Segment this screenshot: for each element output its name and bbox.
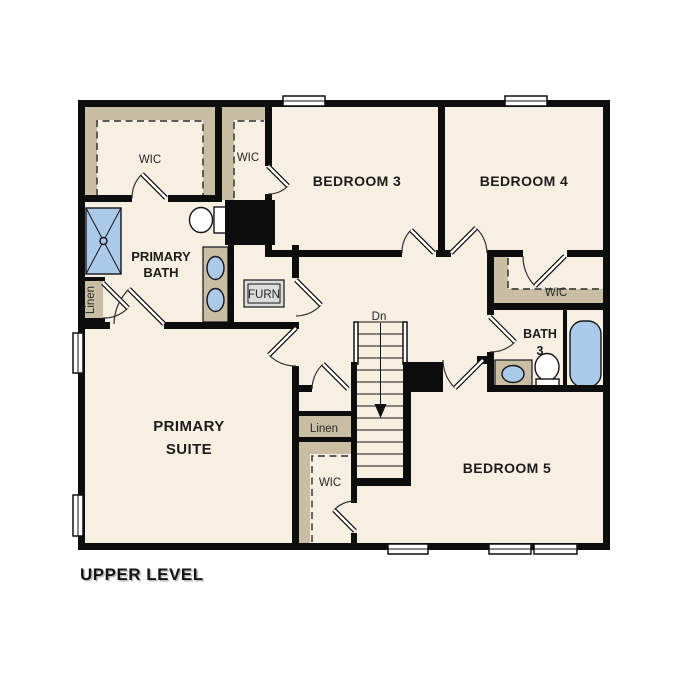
label-bath3-1: BATH	[523, 327, 557, 341]
vanity-sink	[502, 366, 524, 383]
bathtub	[570, 321, 601, 387]
wall-primary-wic-bottom	[85, 195, 132, 202]
plan-title: UPPER LEVEL	[80, 565, 204, 584]
label-primary-bath-2: BATH	[143, 265, 178, 280]
wall-bedroom4-bottom	[567, 250, 603, 257]
window-bedroom5-left	[388, 544, 428, 554]
floor-plan-canvas: WIC WIC BEDROOM 3 BEDROOM 4 PRIMARY BATH…	[0, 0, 687, 687]
floor-plan-page: WIC WIC BEDROOM 3 BEDROOM 4 PRIMARY BATH…	[0, 0, 687, 687]
wall-vanity-furnace	[228, 245, 234, 322]
label-bedroom4-wic: WIC	[545, 287, 567, 299]
vanity-sink	[207, 257, 224, 280]
wall-wic-divider	[215, 107, 222, 202]
toilet-bowl	[190, 208, 213, 233]
stair-rail-right	[403, 322, 407, 364]
window-bedroom5-right	[534, 544, 577, 554]
wall-linen1-top	[85, 277, 105, 281]
wall-wic5-stub	[351, 533, 357, 543]
label-bedroom3: BEDROOM 3	[313, 173, 401, 189]
stair-rail-left	[354, 322, 358, 364]
bath3-toilet	[535, 354, 559, 389]
label-bedroom5-wic: WIC	[319, 477, 341, 489]
wall-linen-bottom	[299, 437, 352, 442]
wall-linen-top	[299, 411, 352, 416]
label-furnace: FURN	[248, 289, 280, 301]
wall-wic4-left	[487, 250, 494, 310]
wall-furnace-right	[292, 245, 299, 278]
wall-bedroom3-left-upper	[265, 107, 272, 166]
exterior-wall-right	[603, 100, 610, 550]
label-bath-linen: Linen	[85, 286, 97, 314]
vanity-sink	[207, 289, 224, 312]
label-primary-bath-1: PRIMARY	[131, 249, 191, 264]
window-suite-lower	[73, 495, 83, 536]
label-hall-linen: Linen	[310, 423, 338, 435]
wall-bath3-left-upper	[487, 303, 494, 315]
primary-bath-vanity	[203, 247, 228, 322]
label-bedroom5: BEDROOM 5	[463, 460, 551, 476]
wall-primary-wic-bottom	[168, 195, 222, 202]
wall-tub-divider	[563, 310, 567, 385]
label-stairs-dn: Dn	[372, 311, 387, 323]
wall-bedroom3-bedroom4	[438, 107, 445, 257]
wall-bedroom3-bottom	[272, 250, 402, 257]
window-bedroom3	[283, 96, 325, 106]
plan-title-group: UPPER LEVEL UPPER LEVEL	[80, 565, 205, 586]
wall-suite-right	[292, 366, 299, 543]
chase-block	[225, 200, 275, 245]
label-primary-suite-2: SUITE	[166, 441, 212, 458]
bedroom5-wic-shelf-left	[299, 442, 310, 543]
window-bedroom4	[505, 96, 547, 106]
wall-hall-closet-stub	[299, 385, 312, 392]
exterior-wall-left	[78, 100, 85, 550]
label-primary-wic: WIC	[139, 154, 161, 166]
shower	[86, 208, 121, 274]
label-bedroom4: BEDROOM 4	[480, 173, 568, 189]
label-bath3-2: 3	[537, 344, 544, 358]
wall-hall-stub	[436, 250, 451, 257]
bath3-vanity	[495, 360, 532, 388]
stair-chase-block	[408, 362, 443, 392]
shower-drain	[100, 238, 107, 245]
wall-stair-bottom	[351, 478, 411, 486]
primary-bath-toilet	[190, 207, 228, 233]
label-bedroom3-wic: WIC	[237, 152, 259, 164]
wall-suite-top	[164, 322, 299, 329]
window-suite-upper	[73, 333, 83, 373]
wall-linen1-bottom	[85, 318, 105, 322]
wall-suite-right-upper	[292, 322, 299, 328]
window-bedroom5-mid	[489, 544, 531, 554]
wall-suite-top-left	[85, 322, 110, 329]
bedroom4-wic-floor	[508, 257, 603, 289]
bedroom5-wic-shelf-top	[299, 442, 351, 454]
wall-wic4-bath3	[487, 303, 603, 310]
label-primary-suite-1: PRIMARY	[153, 418, 224, 435]
wall-bath3-bottom	[487, 385, 603, 392]
